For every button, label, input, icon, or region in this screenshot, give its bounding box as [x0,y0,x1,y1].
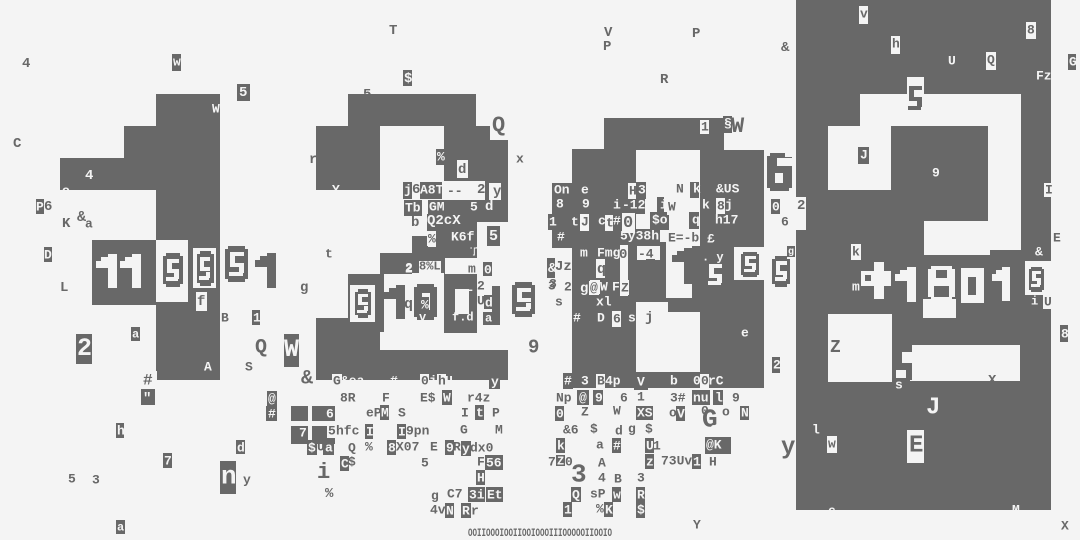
svg-text:C7: C7 [447,486,463,501]
svg-text:5: 5 [470,199,478,214]
svg-text:s: s [628,310,636,325]
svg-text:Fmg: Fmg [597,245,621,260]
svg-text:U: U [477,293,485,308]
svg-text:w: w [173,54,181,69]
svg-text:Q: Q [987,52,995,67]
svg-text:M: M [1012,502,1020,517]
svg-text:W: W [668,199,676,214]
svg-text:4: 4 [85,168,93,184]
svg-text:t: t [571,214,579,229]
svg-text:g: g [431,488,439,503]
svg-text:#: # [613,213,621,228]
svg-text:C: C [13,136,22,152]
svg-text:8: 8 [1027,22,1035,37]
svg-text:0: 0 [421,373,429,388]
svg-text:X: X [988,373,997,389]
svg-text:H: H [629,183,637,198]
svg-text:W: W [284,335,299,364]
svg-text:d: d [485,295,493,310]
svg-text:P: P [36,199,44,214]
svg-text:h17: h17 [715,212,738,227]
svg-text:56: 56 [486,455,502,470]
svg-text:o: o [669,405,677,420]
svg-text:N: N [741,405,749,420]
svg-text:&6: &6 [563,422,579,437]
svg-text:E=-b: E=-b [668,230,699,245]
svg-text:1: 1 [564,502,572,517]
svg-text:7: 7 [299,425,307,440]
svg-text:4p: 4p [605,373,621,388]
svg-text:q: q [404,296,413,313]
svg-text:l: l [715,390,723,405]
svg-text:m: m [580,245,588,260]
svg-text:Q: Q [348,440,356,455]
svg-text:a: a [485,312,492,326]
svg-text:8: 8 [388,440,396,455]
svg-text:#: # [390,373,398,388]
svg-text:J: J [581,214,589,229]
svg-text:l: l [812,422,820,437]
svg-text:8: 8 [1061,326,1069,341]
svg-text:9: 9 [582,196,590,211]
svg-text:d: d [615,423,623,438]
svg-text:": " [143,391,151,407]
svg-text:i: i [613,197,621,212]
svg-text:rC: rC [708,373,724,388]
svg-text:T: T [469,243,477,258]
svg-text:2: 2 [477,182,485,198]
svg-text:V: V [637,374,645,389]
svg-text:G: G [333,373,341,388]
svg-text:4: 4 [598,470,606,485]
svg-text:c: c [598,213,606,228]
svg-text:1: 1 [653,438,661,453]
svg-text:W: W [613,403,621,418]
svg-text:1: 1 [637,389,645,404]
svg-text:j: j [429,373,437,388]
svg-text:g: g [300,280,308,296]
svg-text:r4z: r4z [467,390,490,405]
svg-text:OOIIOOOIOOIIOOIOOOIIIOOOOOIIOO: OOIIOOOIOOIIOOIOOOIIIOOOOOIIOOIO [468,528,612,540]
svg-text:h: h [892,36,900,51]
svg-text:A: A [598,455,606,470]
svg-text:6: 6 [620,390,628,405]
svg-text:G: G [460,422,468,437]
svg-text:q: q [692,212,700,227]
svg-text:U: U [445,373,453,388]
svg-text:#: # [573,310,581,325]
svg-text:XS: XS [637,405,653,420]
svg-text:e: e [581,182,589,197]
svg-text:&: & [781,40,790,56]
svg-text:F: F [382,390,390,405]
svg-text:y: y [462,441,470,456]
svg-text:%: % [365,439,373,454]
svg-text:k: k [852,244,860,259]
svg-text:q: q [597,261,606,278]
svg-text:#: # [613,438,621,453]
svg-text:U: U [1044,294,1052,309]
svg-text:5y38h: 5y38h [620,228,659,243]
svg-text:y: y [491,374,499,389]
svg-text:1: 1 [253,310,261,325]
svg-text:B: B [597,373,605,388]
svg-text:$: $ [348,454,356,469]
svg-text:W: W [212,101,220,116]
svg-text:6: 6 [44,199,52,215]
svg-text:R: R [462,503,470,518]
svg-text:Y: Y [693,517,701,532]
svg-text:5: 5 [421,455,429,470]
svg-text:w: w [613,487,621,502]
svg-text:N: N [446,503,454,518]
svg-text:Jz: Jz [555,259,572,275]
svg-text:S: S [245,359,253,374]
svg-text:#: # [557,229,565,244]
svg-text:e: e [741,325,749,340]
svg-text:s: s [895,377,903,392]
svg-text:n: n [221,462,237,492]
svg-text:5: 5 [363,87,371,103]
svg-text:j: j [645,310,653,326]
svg-text:E: E [909,432,923,459]
svg-text:&US: &US [716,181,740,196]
svg-text:X: X [1061,518,1069,533]
svg-text:1: 1 [693,454,701,469]
svg-text:P: P [692,26,700,42]
svg-text:j: j [725,197,733,212]
svg-text:3: 3 [638,182,646,197]
svg-text:J: J [926,394,940,421]
svg-text:i: i [317,460,330,485]
svg-text:5: 5 [328,423,336,438]
svg-text:A8T: A8T [420,182,444,197]
svg-text:2: 2 [564,279,572,294]
svg-text:@: @ [268,391,276,406]
svg-text:xl: xl [596,294,612,309]
svg-text:8%L: 8%L [419,260,441,274]
svg-text:a: a [132,328,139,342]
svg-text:8: 8 [717,198,725,213]
svg-text:. y: . y [702,251,724,265]
svg-text:a: a [596,437,604,452]
svg-text:Q: Q [572,487,580,502]
svg-text:5: 5 [239,85,247,101]
svg-text:a: a [85,216,93,231]
svg-text:1: 1 [549,214,557,229]
svg-text:Q2cX: Q2cX [427,213,461,229]
svg-text:d: d [485,199,493,215]
svg-text:E: E [430,439,438,454]
svg-text:0: 0 [484,262,492,277]
svg-text:Tb: Tb [405,200,421,215]
svg-text:&: & [1035,244,1043,259]
svg-text:9: 9 [932,165,940,180]
svg-text:I: I [366,424,374,439]
svg-text:%: % [437,149,445,164]
svg-text:eP: eP [366,405,382,420]
svg-text:N: N [676,181,684,196]
svg-text:w: w [828,436,836,451]
svg-text:i: i [1031,295,1038,309]
svg-text:3: 3 [581,373,589,388]
svg-text:Q: Q [255,336,267,359]
svg-text:J: J [860,147,868,162]
svg-text:R: R [660,72,669,88]
svg-text:B: B [221,310,229,325]
svg-text:j: j [404,182,412,197]
svg-text:M: M [381,405,389,420]
svg-text:f.d: f.d [452,311,474,325]
svg-text:Fz: Fz [1036,68,1052,83]
svg-text:K: K [605,502,613,517]
svg-text:&: & [301,367,313,390]
svg-text:b: b [670,373,678,388]
svg-text:P: P [603,39,611,55]
svg-text:K: K [62,216,71,232]
svg-text:W: W [600,279,608,294]
svg-text:r: r [309,152,317,168]
svg-text:9pn: 9pn [406,423,430,438]
svg-text:3: 3 [637,470,645,485]
svg-text:m: m [852,279,860,294]
svg-text:P: P [492,405,500,420]
svg-text:73Uv: 73Uv [661,453,692,468]
svg-text:M: M [495,422,503,437]
svg-text:F: F [612,279,620,294]
svg-text:y: y [243,472,251,487]
svg-text:a: a [325,440,333,455]
svg-text:b: b [411,215,419,231]
svg-text:2: 2 [773,357,781,372]
svg-text:x: x [516,151,524,166]
svg-text:$: $ [404,71,412,87]
svg-text:S: S [398,405,406,420]
svg-text:0: 0 [693,373,701,388]
svg-text:8R: 8R [340,390,356,405]
svg-text:%: % [428,231,436,246]
svg-text:hfc: hfc [336,423,360,438]
svg-text:X07: X07 [396,439,419,454]
svg-text:$: $ [637,502,645,517]
svg-text:E: E [1053,230,1061,245]
svg-text:m: m [468,261,476,276]
svg-text:3#: 3# [670,390,686,405]
svg-text:B: B [614,471,622,486]
svg-text:y: y [493,184,502,200]
svg-text:Z: Z [557,455,564,469]
svg-text:z: z [646,454,654,469]
svg-text:t: t [476,405,484,420]
svg-text:D: D [597,310,605,325]
svg-text:8: 8 [556,196,564,211]
svg-text:@: @ [579,390,587,405]
svg-text:9: 9 [595,390,603,405]
svg-text:7: 7 [548,454,556,469]
svg-text:$: $ [308,440,316,455]
svg-text:t: t [325,246,333,261]
svg-text:H: H [709,454,717,469]
svg-text:i: i [660,197,668,212]
svg-text:A: A [204,359,212,374]
svg-text:Et: Et [487,487,503,502]
svg-text:K6f: K6f [451,229,475,244]
svg-text:-: - [467,284,474,298]
svg-text:3: 3 [92,472,100,487]
svg-text:o: o [722,404,730,419]
svg-text:Z: Z [830,338,841,358]
svg-text:I: I [461,405,469,420]
svg-text:sP: sP [590,486,606,501]
svg-text:L: L [60,280,68,296]
svg-text:4: 4 [22,56,30,72]
svg-text:$: $ [645,421,653,436]
svg-text:I: I [1045,182,1053,197]
svg-text:5: 5 [489,228,498,245]
svg-text:3i: 3i [469,487,485,502]
svg-text:D: D [44,247,52,262]
svg-text:U: U [948,53,956,68]
svg-text:0: 0 [556,406,564,421]
svg-text:On: On [554,182,570,197]
svg-text:H: H [477,470,485,485]
svg-text:9: 9 [528,337,539,359]
svg-text:o: o [62,183,70,198]
svg-text:4v: 4v [430,502,446,517]
svg-text:#: # [268,406,276,421]
svg-text:2: 2 [477,278,485,293]
svg-text:$o: $o [652,212,668,227]
svg-text:k: k [702,197,710,212]
svg-text:&ea: &ea [341,373,365,388]
svg-text:#: # [143,372,153,390]
svg-text:g: g [788,247,794,258]
svg-text:7: 7 [164,453,172,468]
svg-text:3: 3 [549,276,557,291]
svg-text:F: F [477,454,485,469]
svg-text:04: 04 [710,422,726,437]
svg-text:2: 2 [77,334,92,363]
svg-text:g: g [580,281,588,297]
svg-text:6: 6 [781,214,789,229]
svg-text:#: # [564,373,572,388]
svg-text:-12: -12 [622,197,646,212]
svg-text:2: 2 [405,261,413,276]
svg-text:$: $ [590,421,598,436]
svg-text:3: 3 [571,460,587,490]
svg-text:--: -- [447,183,463,198]
svg-text:W: W [731,114,745,139]
svg-text:E$: E$ [420,390,436,405]
svg-text:T: T [389,23,397,39]
svg-text:v: v [860,6,868,21]
svg-text:R: R [637,487,645,502]
svg-text:v: v [419,311,426,325]
svg-text:s: s [555,294,563,309]
svg-text:Q: Q [492,113,505,138]
svg-text:2: 2 [797,198,805,214]
svg-text:V: V [677,406,685,421]
svg-text:k: k [693,181,701,196]
svg-text:Np: Np [556,390,572,405]
svg-text:W: W [443,390,451,405]
svg-text:R: R [453,439,461,454]
svg-text:@: @ [590,280,598,295]
svg-text:k: k [557,438,565,453]
svg-text:G: G [1069,54,1077,69]
svg-text:%: % [325,486,334,502]
svg-text:6: 6 [613,311,621,326]
svg-text:dx0: dx0 [470,440,494,455]
svg-text:d: d [237,440,245,455]
svg-text:h: h [117,423,125,438]
svg-text:Z: Z [581,404,589,419]
svg-text:r: r [471,503,479,518]
svg-text:Y: Y [332,182,340,197]
svg-text:%: % [596,501,604,516]
svg-text:6: 6 [326,406,334,421]
svg-text:9: 9 [732,390,740,405]
svg-text:c: c [828,503,836,518]
svg-text:I: I [398,424,406,439]
svg-text:g: g [628,421,636,436]
svg-text:a: a [117,521,124,535]
svg-text:@K: @K [706,437,722,452]
svg-text:f: f [197,294,205,310]
svg-text:d: d [458,162,466,178]
svg-text:0: 0 [772,199,780,214]
svg-text:£: £ [707,231,715,246]
svg-text:Z: Z [621,280,629,295]
svg-text:5: 5 [68,471,76,486]
svg-text:y: y [781,434,795,461]
svg-text:1: 1 [701,119,709,134]
